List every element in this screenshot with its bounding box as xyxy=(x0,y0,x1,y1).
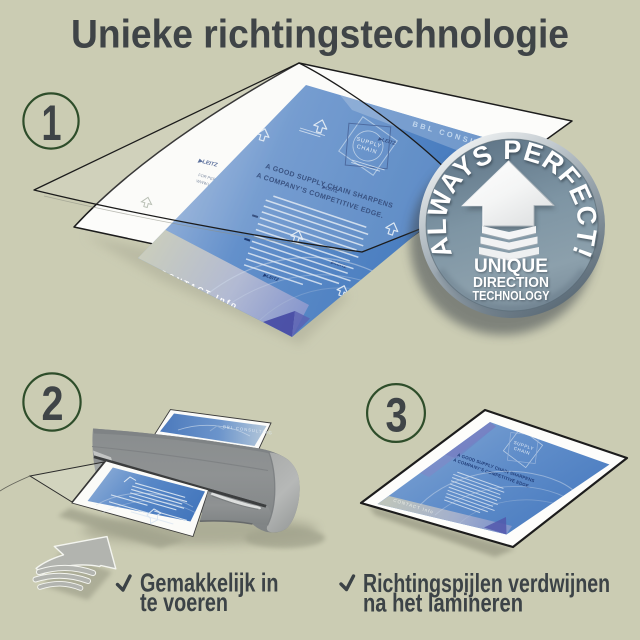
svg-text:3: 3 xyxy=(386,390,408,443)
svg-text:1: 1 xyxy=(42,95,62,151)
svg-text:na het lamineren: na het lamineren xyxy=(363,588,523,618)
svg-text:TECHNOLOGY: TECHNOLOGY xyxy=(473,288,550,303)
svg-text:te voeren: te voeren xyxy=(140,587,228,617)
svg-text:Unieke richtingstechnologie: Unieke richtingstechnologie xyxy=(71,13,569,57)
svg-text:2: 2 xyxy=(42,378,64,431)
